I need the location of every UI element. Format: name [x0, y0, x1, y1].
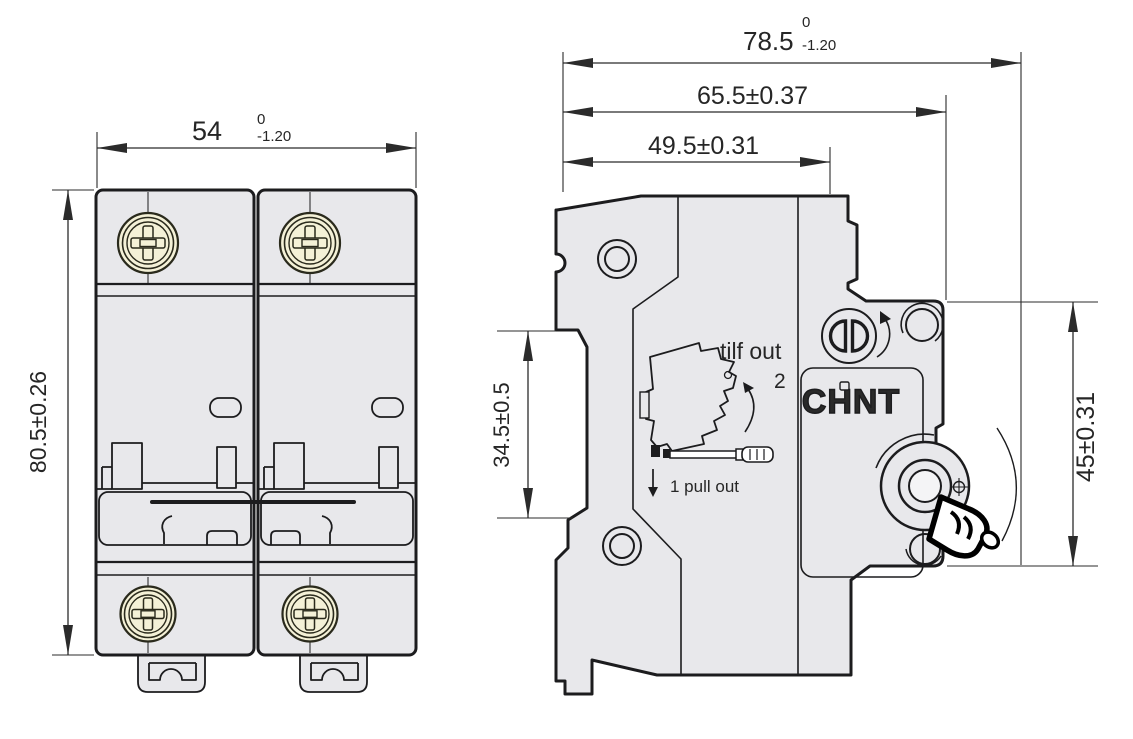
terminal-screw-icon	[118, 213, 178, 273]
dim-front-depth: 49.5±0.31	[563, 132, 830, 194]
dim-width: 54 0 -1.20	[97, 111, 416, 188]
toggle-lever-icon	[929, 497, 1001, 556]
pull-out-label: 1 pull out	[670, 477, 739, 496]
brand-logo-text: CHNT	[802, 383, 900, 421]
dim-height: 80.5±0.26	[25, 190, 94, 655]
pole-1-body	[96, 190, 254, 655]
dim-width-value: 54	[192, 116, 222, 146]
terminal-screw-icon	[283, 587, 338, 642]
dim-rail-slot-value: 34.5±0.5	[489, 382, 514, 467]
dim-height-value: 80.5±0.26	[25, 371, 51, 473]
dim-width-tol-bottom: -1.20	[257, 128, 291, 145]
dim-rail-slot: 34.5±0.5	[489, 331, 573, 518]
side-terminal-screw-icon	[822, 309, 876, 363]
lever-swing-arc	[997, 428, 1016, 541]
terminal-screw-icon	[121, 587, 176, 642]
tilt-out-label: tilf out	[720, 338, 782, 364]
breaker-dimension-drawing: 54 0 -1.20 80.5±0.26 CHNT	[0, 0, 1133, 739]
dim-width-tol-top: 0	[257, 111, 265, 128]
terminal-screw-icon	[280, 213, 340, 273]
dim-total-depth-value: 78.5	[743, 26, 794, 56]
handle-plate	[261, 492, 413, 545]
dim-handle-height-value: 45±0.31	[1072, 392, 1100, 482]
dim-total-depth-tol-top: 0	[802, 14, 810, 31]
dim-body-depth-value: 65.5±0.37	[697, 82, 808, 110]
pole-2-body	[258, 190, 416, 655]
tilt-step-number: 2	[774, 370, 786, 393]
brand-logo-dot	[840, 382, 849, 390]
handle-plate	[99, 492, 251, 545]
dim-total-depth-tol-bottom: -1.20	[802, 37, 836, 54]
technical-drawing-page: 54 0 -1.20 80.5±0.26 CHNT	[0, 0, 1133, 739]
front-view: 54 0 -1.20 80.5±0.26	[25, 111, 416, 692]
dim-front-depth-value: 49.5±0.31	[648, 132, 759, 160]
mounting-feet	[138, 655, 367, 692]
handle-area	[99, 492, 413, 545]
side-view: CHNT	[489, 14, 1100, 694]
